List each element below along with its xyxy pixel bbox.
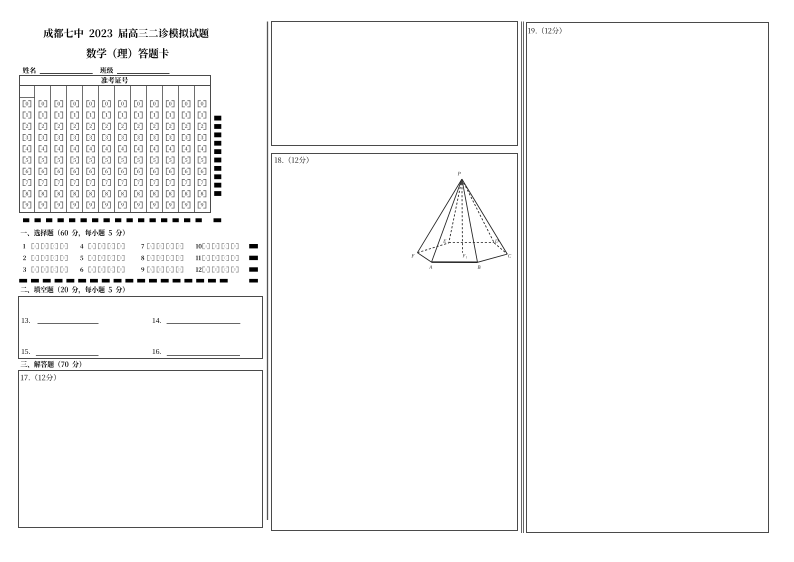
svg-text:15.: 15. [21,347,30,356]
svg-text:16.: 16. [152,347,161,356]
svg-text:13.: 13. [21,316,30,325]
svg-text:14.: 14. [152,316,161,325]
